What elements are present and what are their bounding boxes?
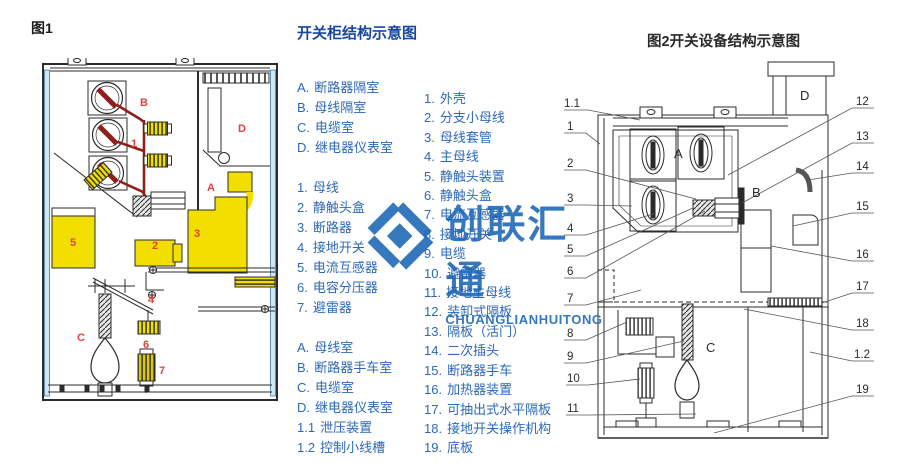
fig2-callout-2: 2 [567,158,573,170]
legend-item-label: 母线套管 [440,128,492,147]
fig2-callout-15: 15 [856,201,869,213]
fig2-callout-12: 12 [856,96,869,108]
legend-item-key: A. [297,338,309,358]
legend-item-label: 泄压装置 [320,418,372,438]
legend-item-label: 主母线 [440,147,479,166]
legend-item-key: 7. [297,298,308,318]
legend-item-label: 二次插头 [447,341,499,360]
legend-item-key: 3. [424,128,435,147]
figure2-caption: 图2开关设备结构示意图 [647,30,800,51]
legend-item-key: 4. [297,238,308,258]
figure1-diagram: B 1 D A 3 2 5 4 C 6 7 [40,58,290,408]
legend-item-label: 静触头盒 [313,198,365,218]
legend-item-label: 控制小线槽 [320,438,385,458]
legend-item-key: 11. [424,283,441,302]
legend-item-key: 16. [424,380,442,399]
legend-item-label: 加热器装置 [447,380,512,399]
legend-item-key: 1. [297,178,308,198]
fig1-label-B: B [140,97,148,109]
legend-item-label: 电缆 [440,244,466,263]
fig2-callout-1-2: 1.2 [854,349,870,361]
legend-item-label: 接地开关 [313,238,365,258]
legend-item: 3.断路器 [297,218,427,238]
legend-item-key: 5. [424,167,435,186]
legend-item: 14.二次插头 [424,341,570,360]
legend-item-key: 10. [424,264,442,283]
legend-item: 13.隔板（活门） [424,322,570,341]
fig1-label-2: 2 [152,240,158,252]
legend-item-key: A. [297,78,309,98]
legend-item-label: 接地开关 [440,225,492,244]
legend-item-key: 8. [424,225,435,244]
legend-item: 17.可抽出式水平隔板 [424,400,570,419]
fig2-callout-19: 19 [856,384,869,396]
fig2-callout-8: 8 [567,328,573,340]
legend-item-key: 1.1 [297,418,315,438]
legend-item: B.母线隔室 [297,98,427,118]
legend-item: 2.静触头盒 [297,198,427,218]
legend-item-key: 14. [424,341,442,360]
legend-item: 1.母线 [297,178,427,198]
legend-item-label: 断路器隔室 [314,78,379,98]
legend-item: 16.加热器装置 [424,380,570,399]
legend-item: 1.1泄压装置 [297,418,427,438]
legend-item: 4.主母线 [424,147,570,166]
legend-item-key: 2. [424,108,435,127]
legend-item-label: 静触头装置 [440,167,505,186]
fig2-callout-1-1: 1.1 [564,98,580,110]
legend-item-label: 母线隔室 [314,98,366,118]
legend-item: 5.电流互感器 [297,258,427,278]
fig2-callout-14: 14 [856,161,869,173]
legend-item: 4.接地开关 [297,238,427,258]
fig2-callout-5: 5 [567,244,573,256]
legend-item: 6.静触头盒 [424,186,570,205]
legend-item: C.电缆室 [297,118,427,138]
legend-item-key: 6. [297,278,308,298]
legend-item-label: 外壳 [440,89,466,108]
fig2-callout-10: 10 [567,373,580,385]
legend-item-label: 电缆室 [315,378,354,398]
legend-item-label: 避雷器 [447,264,486,283]
fig1-label-1: 1 [131,138,137,150]
fig1-label-3: 3 [194,228,200,240]
fig2-callout-16: 16 [856,249,869,261]
legend-item: 5.静触头装置 [424,167,570,186]
legend-item: 19.底板 [424,438,570,457]
legend-item-key: 12. [424,302,442,321]
legend-item-label: 断路器 [313,218,352,238]
legend-item-key: C. [297,118,310,138]
legend-item: 7.电流互感器 [424,205,570,224]
legend-item-label: 装卸式隔板 [447,302,512,321]
legend-item-key: 13. [424,322,442,341]
legend-item: 11.接地主母线 [424,283,570,302]
legend-item-label: 电流互感器 [440,205,505,224]
fig2-callout-3: 3 [567,193,573,205]
legend-item-label: 母线室 [314,338,353,358]
legend-group-compartments-top: A.断路器隔室B.母线隔室C.电缆室D.继电器仪表室 [297,78,427,158]
legend-item: 8.接地开关 [424,225,570,244]
legend-item: 1.2控制小线槽 [297,438,427,458]
legend-item-label: 分支小母线 [440,108,505,127]
fig2-callout-17: 17 [856,281,869,293]
legend-group-parts-fig1: 1.母线2.静触头盒3.断路器4.接地开关5.电流互感器6.电容分压器7.避雷器 [297,178,427,318]
legend-item-label: 断路器手车 [447,361,512,380]
fig2-letter-B: B [752,185,761,200]
fig2-callout-11: 11 [567,403,579,415]
legend-item-key: 2. [297,198,308,218]
legend-item: 7.避雷器 [297,298,427,318]
legend-item-label: 可抽出式水平隔板 [447,400,551,419]
fig2-callout-9: 9 [567,351,573,363]
legend-group-compartments-fig2: A.母线室B.断路器手车室C.电缆室D.继电器仪表室1.1泄压装置1.2控制小线… [297,338,427,458]
legend-item-label: 继电器仪表室 [315,138,393,158]
fig1-label-7: 7 [159,365,165,377]
legend-item-key: 3. [297,218,308,238]
legend-item-key: D. [297,398,310,418]
legend-item-label: 电缆室 [315,118,354,138]
fig2-callout-6: 6 [567,266,573,278]
legend-item-label: 接地主母线 [446,283,511,302]
legend-column-1: A.断路器隔室B.母线隔室C.电缆室D.继电器仪表室 1.母线2.静触头盒3.断… [297,78,427,474]
legend-item-key: 4. [424,147,435,166]
figure2-diagram: A B C D 1.1 1 2 3 4 5 6 7 8 9 10 11 12 1… [556,52,900,467]
legend-item: D.继电器仪表室 [297,398,427,418]
fig2-callout-1: 1 [567,121,573,133]
page: 图1 开关柜结构示意图 图2开关设备结构示意图 A.断路器隔室B.母线隔室C.电… [0,0,900,474]
fig1-label-D: D [238,123,246,135]
legend-item: 15.断路器手车 [424,361,570,380]
legend-item: 10.避雷器 [424,264,570,283]
legend-item-label: 避雷器 [313,298,352,318]
fig1-label-5: 5 [70,237,76,249]
fig1-label-6: 6 [143,339,149,351]
legend-item: 2.分支小母线 [424,108,570,127]
legend-group-parts-fig2: 1.外壳2.分支小母线3.母线套管4.主母线5.静触头装置6.静触头盒7.电流互… [424,89,570,458]
legend-item-label: 隔板（活门） [447,322,525,341]
fig2-callout-4: 4 [567,223,574,235]
legend-item-key: B. [297,358,309,378]
legend-item-key: 19. [424,438,442,457]
legend-item-label: 静触头盒 [440,186,492,205]
legend-item: A.断路器隔室 [297,78,427,98]
legend-item-key: 17. [424,400,442,419]
fig1-label-C: C [77,332,85,344]
legend-item-key: 7. [424,205,435,224]
legend-item-label: 电流互感器 [313,258,378,278]
legend-item-key: C. [297,378,310,398]
legend-item-label: 继电器仪表室 [315,398,393,418]
legend-item-label: 电容分压器 [313,278,378,298]
legend-item-key: 18. [424,419,442,438]
legend-item-key: 5. [297,258,308,278]
fig1-label-A: A [207,182,215,194]
fig2-letter-A: A [674,146,683,161]
legend-item: A.母线室 [297,338,427,358]
legend-item-key: D. [297,138,310,158]
legend-item: 9.电缆 [424,244,570,263]
legend-item-key: B. [297,98,309,118]
legend-item: 3.母线套管 [424,128,570,147]
legend-item: B.断路器手车室 [297,358,427,378]
legend-item: D.继电器仪表室 [297,138,427,158]
legend-item: 18.接地开关操作机构 [424,419,570,438]
legend-item: 6.电容分压器 [297,278,427,298]
legend-item: C.电缆室 [297,378,427,398]
fig2-letter-C: C [706,340,715,355]
legend-item-label: 底板 [447,438,473,457]
legend-title: 开关柜结构示意图 [297,22,417,43]
legend-item: 1.外壳 [424,89,570,108]
fig1-label-4: 4 [148,294,155,306]
fig2-callout-18: 18 [856,318,869,330]
figure1-caption: 图1 [31,18,53,38]
legend-item-key: 1. [424,89,435,108]
legend-item-key: 15. [424,361,442,380]
fig2-letter-D: D [800,88,809,103]
fig2-callout-7: 7 [567,293,573,305]
legend-item-key: 9. [424,244,435,263]
fig2-callout-13: 13 [856,131,869,143]
legend-item-key: 6. [424,186,435,205]
legend-item: 12.装卸式隔板 [424,302,570,321]
legend-item-label: 断路器手车室 [314,358,392,378]
legend-item-label: 接地开关操作机构 [447,419,551,438]
legend-item-key: 1.2 [297,438,315,458]
legend-item-label: 母线 [313,178,339,198]
legend-column-2: 1.外壳2.分支小母线3.母线套管4.主母线5.静触头装置6.静触头盒7.电流互… [424,89,570,474]
